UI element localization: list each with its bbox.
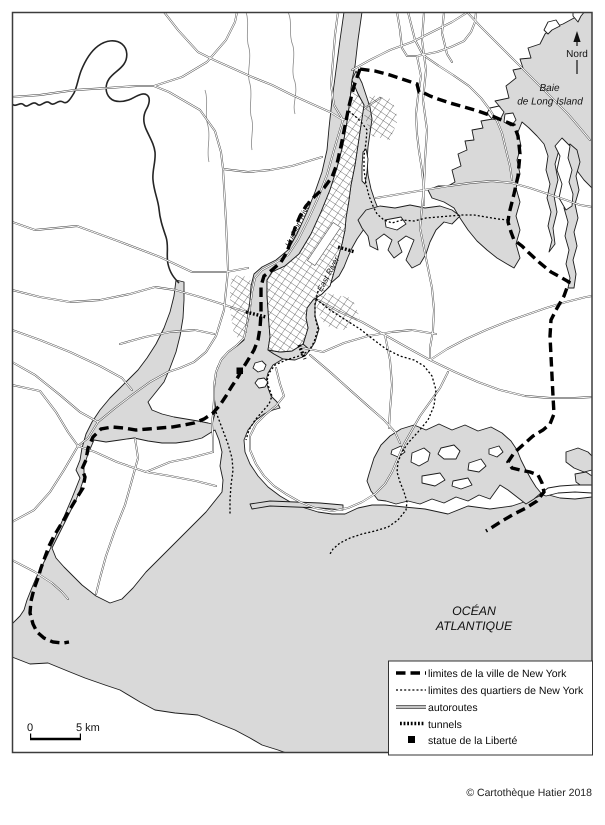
svg-text:© Cartothèque Hatier 2018: © Cartothèque Hatier 2018 bbox=[466, 787, 592, 799]
svg-text:0: 0 bbox=[27, 722, 33, 734]
svg-text:limites de la ville de New Yor: limites de la ville de New York bbox=[428, 668, 567, 680]
svg-text:statue de la Liberté: statue de la Liberté bbox=[428, 735, 517, 747]
svg-text:tunnels: tunnels bbox=[428, 719, 462, 731]
svg-text:Nord: Nord bbox=[566, 49, 588, 60]
svg-text:ATLANTIQUE: ATLANTIQUE bbox=[435, 619, 513, 633]
svg-text:5 km: 5 km bbox=[76, 722, 100, 734]
svg-text:autoroutes: autoroutes bbox=[428, 702, 478, 714]
svg-text:limites des quartiers de New Y: limites des quartiers de New York bbox=[428, 685, 584, 697]
svg-text:Baie: Baie bbox=[539, 83, 559, 94]
svg-text:OCÉAN: OCÉAN bbox=[452, 604, 496, 618]
svg-text:de Long Island: de Long Island bbox=[517, 97, 583, 108]
